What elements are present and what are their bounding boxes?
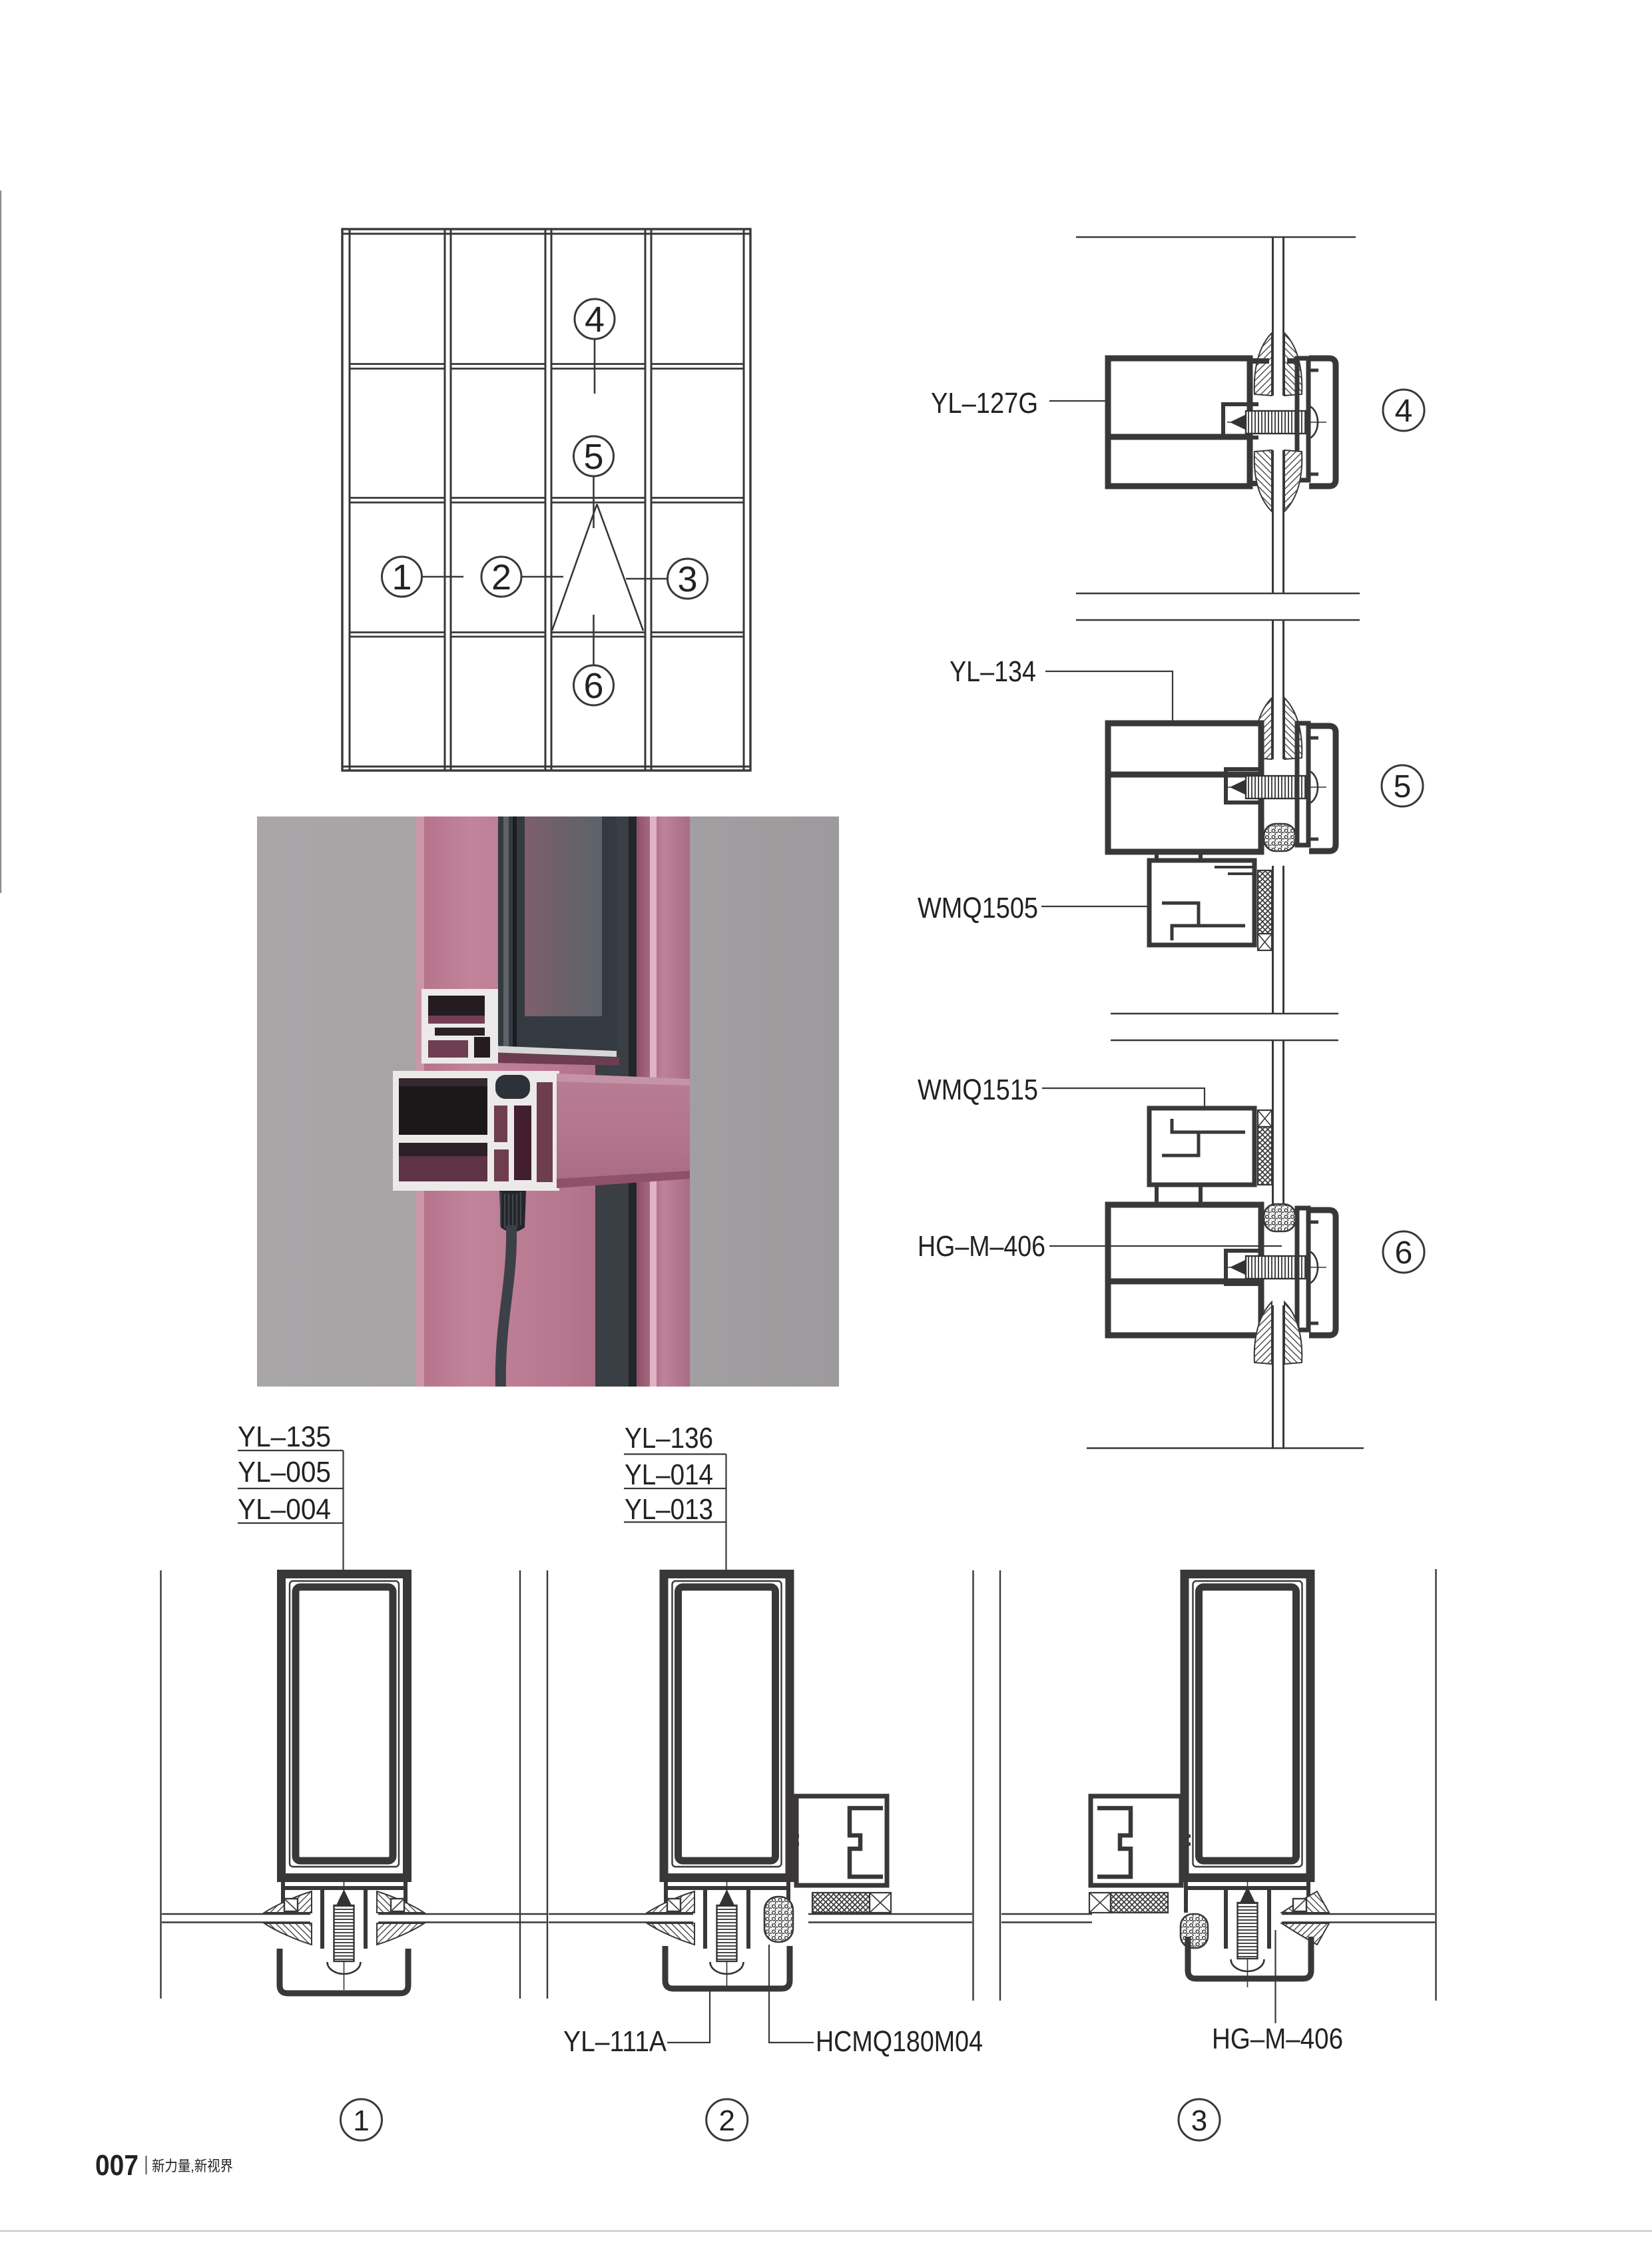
svg-text:YL–005: YL–005 bbox=[238, 1456, 331, 1488]
svg-text:1: 1 bbox=[353, 2104, 369, 2137]
svg-text:4: 4 bbox=[585, 300, 605, 340]
svg-text:YL–013: YL–013 bbox=[625, 1493, 713, 1526]
svg-text:HG–M–406: HG–M–406 bbox=[1212, 2023, 1343, 2055]
svg-text:5: 5 bbox=[1394, 769, 1412, 804]
svg-text:6: 6 bbox=[1395, 1235, 1413, 1271]
svg-text:2: 2 bbox=[491, 557, 511, 597]
svg-text:1: 1 bbox=[392, 557, 412, 597]
svg-text:6: 6 bbox=[583, 666, 603, 706]
svg-text:YL–004: YL–004 bbox=[238, 1493, 331, 1526]
svg-text:WMQ1515: WMQ1515 bbox=[918, 1074, 1038, 1106]
svg-text:2: 2 bbox=[718, 2104, 734, 2137]
svg-text:007: 007 bbox=[95, 2149, 138, 2182]
svg-text:5: 5 bbox=[583, 437, 603, 477]
svg-text:3: 3 bbox=[677, 559, 697, 599]
svg-text:新力量,新视界: 新力量,新视界 bbox=[152, 2158, 233, 2174]
svg-text:YL–111A: YL–111A bbox=[563, 2025, 667, 2058]
svg-text:YL–134: YL–134 bbox=[950, 655, 1036, 688]
svg-text:YL–135: YL–135 bbox=[238, 1421, 331, 1453]
svg-text:HG–M–406: HG–M–406 bbox=[918, 1230, 1045, 1263]
svg-text:3: 3 bbox=[1191, 2104, 1207, 2137]
svg-text:YL–014: YL–014 bbox=[625, 1458, 713, 1491]
svg-text:4: 4 bbox=[1395, 394, 1413, 429]
svg-text:HCMQ180M04: HCMQ180M04 bbox=[816, 2025, 983, 2058]
svg-text:YL–136: YL–136 bbox=[625, 1422, 713, 1454]
svg-text:YL–127G: YL–127G bbox=[931, 387, 1038, 420]
svg-text:WMQ1505: WMQ1505 bbox=[918, 892, 1038, 924]
